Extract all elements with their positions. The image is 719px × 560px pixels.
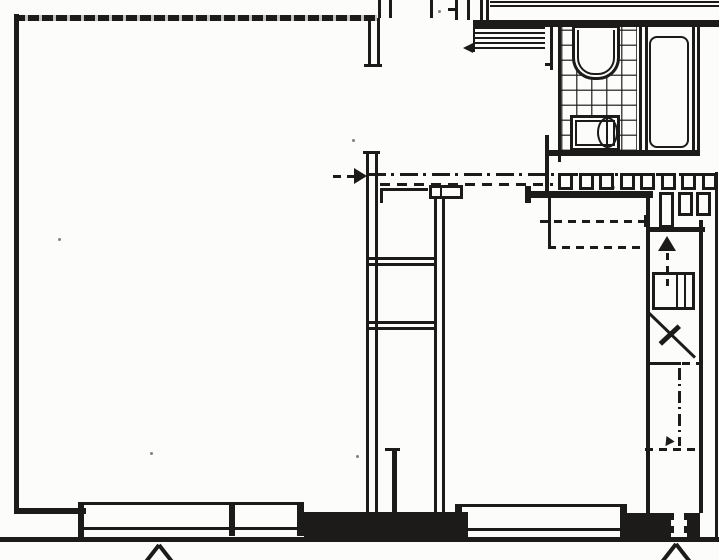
center-wall-pier <box>304 512 468 538</box>
hall-wall-end-cap <box>525 186 531 203</box>
window-1-mullion <box>229 505 235 536</box>
duct-left-edge <box>473 27 475 52</box>
partition-wall-a-left-line <box>366 152 369 513</box>
neighbor-boundary-line <box>715 172 718 541</box>
partition-wall-b-left-line <box>434 195 437 513</box>
bottom-left-wall <box>14 508 86 514</box>
door-jamb-wall-right-line <box>377 18 380 67</box>
top-edge-stub-2 <box>430 0 433 18</box>
scan-speck <box>58 238 61 241</box>
railing-post <box>558 173 573 190</box>
bathroom-left-wall-lower <box>545 135 549 198</box>
duct-hatched-area <box>475 27 545 52</box>
scan-speck <box>356 455 359 458</box>
corridor-door-jamb-cap <box>385 448 400 451</box>
corridor-right-wall <box>699 220 703 513</box>
railing-post <box>620 173 635 190</box>
entry-pier-left <box>627 513 671 538</box>
left-exterior-wall <box>14 14 19 511</box>
scan-speck <box>150 452 153 455</box>
radiator-divider <box>440 187 442 197</box>
bath-niche-right-wall-a <box>692 20 695 156</box>
scan-speck <box>438 10 441 13</box>
shelf-line <box>380 188 428 191</box>
toilet-bowl-inner-line <box>577 30 615 75</box>
top-exterior-wall <box>14 15 377 21</box>
partition-wall-a-right-line <box>375 152 378 513</box>
entry-pier-right <box>687 513 700 538</box>
landing-line <box>648 362 681 365</box>
closet-connector-wall-1a <box>369 257 434 260</box>
top-edge-stub-3b <box>467 0 470 20</box>
corridor-left-wall <box>646 198 650 513</box>
stair-direction-arrow-head-icon <box>658 236 676 251</box>
closet-connector-wall-2a <box>369 321 434 324</box>
radiator-fixture <box>429 185 463 199</box>
window-1-left-jamb <box>78 502 84 538</box>
top-boundary-line-a <box>490 1 719 3</box>
window-1-head-line <box>78 502 304 505</box>
bath-niche-left-wall-a <box>639 20 642 156</box>
bathtub-fixture <box>649 36 689 148</box>
floor-plan-canvas <box>0 0 719 560</box>
corridor-cabinet-divider-b <box>684 274 686 308</box>
window-2-left-jamb <box>455 504 462 538</box>
top-edge-stub-4b <box>486 0 489 20</box>
lower-post <box>659 192 674 228</box>
window-2-right-jamb <box>620 507 627 537</box>
washbasin-tap-line <box>606 117 608 148</box>
section-arrow-head-icon <box>354 168 367 184</box>
section-arrow-shaft <box>333 175 355 178</box>
railing-post <box>702 173 717 190</box>
window-2-head-line <box>455 504 627 507</box>
corridor-cabinet-divider-a <box>676 274 678 308</box>
entrance-arrow-left-leg-b <box>157 544 174 560</box>
corridor-dashed-threshold <box>645 448 700 451</box>
shelf-line-hook <box>380 188 383 203</box>
scan-speck <box>612 186 615 189</box>
lower-post <box>696 192 711 216</box>
duct-arrow-icon <box>463 43 473 53</box>
landing-line-dashed <box>682 362 700 365</box>
hall-wardrobe-dashed-front <box>540 220 645 223</box>
lower-post <box>678 192 693 216</box>
hall-wall <box>527 191 653 198</box>
railing-post <box>579 173 594 190</box>
window-1-sill-line <box>84 527 305 530</box>
hall-wardrobe-dashed-back <box>548 246 644 249</box>
closet-connector-wall-1b <box>369 263 434 266</box>
bath-niche-left-wall-b <box>645 20 648 156</box>
entrance-arrow-right-leg-b <box>674 543 691 560</box>
hall-wardrobe-side-line <box>548 198 551 248</box>
top-edge-stub-1a <box>378 0 381 18</box>
bathroom-left-wall-tick <box>545 63 553 66</box>
top-boundary-line-b <box>490 5 719 7</box>
entry-door-dashed-edge-a <box>671 513 674 538</box>
window-1-right-jamb <box>297 505 304 536</box>
corridor-cabinet <box>652 272 695 310</box>
window-2-sill-line <box>462 528 627 531</box>
flow-dash-dot-line <box>678 368 681 446</box>
corridor-door-jamb-stub <box>392 450 397 512</box>
partition-wall-b-right-line <box>442 195 445 513</box>
door-jamb-wall-left-line <box>368 18 371 67</box>
top-edge-stub-1b <box>389 0 392 18</box>
railing-post <box>640 173 655 190</box>
door-jamb-cap <box>364 64 382 67</box>
closet-connector-wall-2b <box>369 327 434 330</box>
bath-niche-right-wall-b <box>697 20 700 156</box>
scan-speck <box>352 139 355 142</box>
top-edge-stub-4a <box>480 0 483 20</box>
bathroom-bottom-wall <box>545 150 700 156</box>
top-edge-stub-tick <box>448 8 456 11</box>
railing-post <box>681 173 696 190</box>
partition-wall-a-cap <box>363 151 380 154</box>
railing-post <box>661 173 676 190</box>
